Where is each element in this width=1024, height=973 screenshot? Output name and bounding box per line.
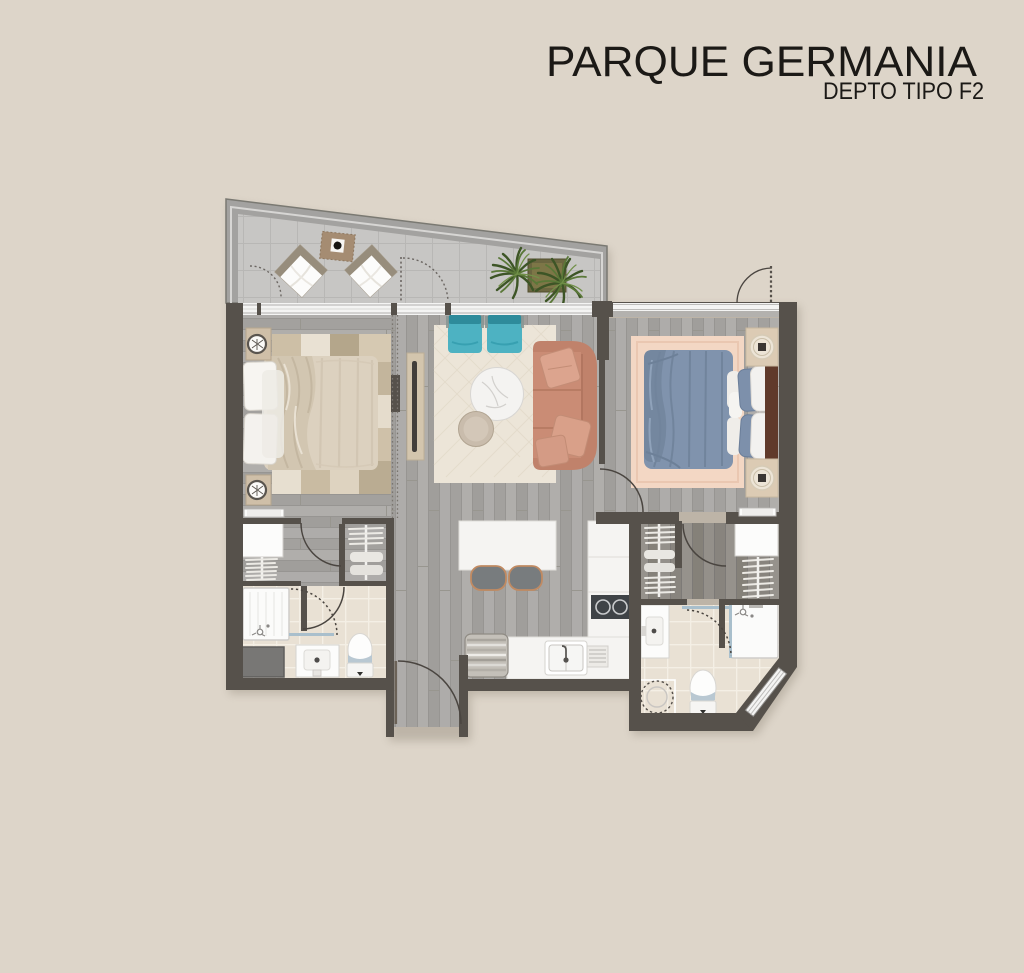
svg-text:DEPTO TIPO F2: DEPTO TIPO F2 [823, 78, 984, 105]
